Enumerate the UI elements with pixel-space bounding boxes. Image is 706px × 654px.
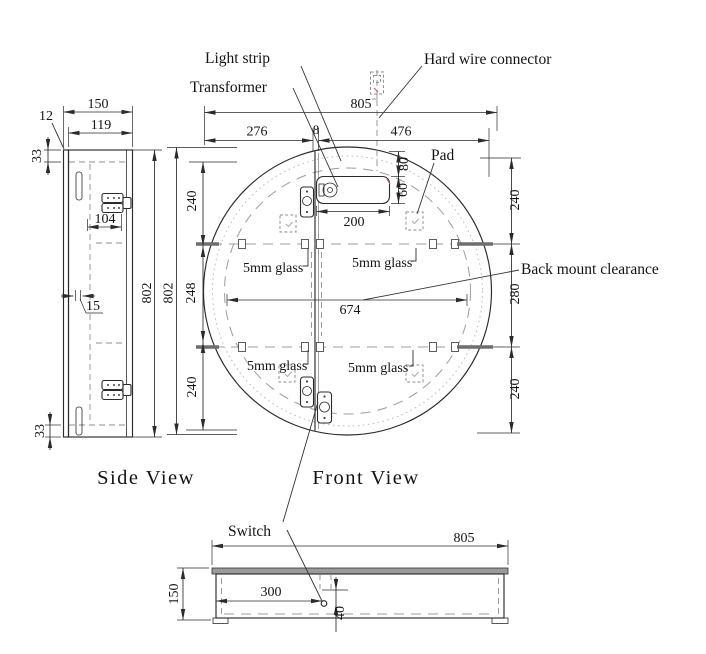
dim-805-top: 805: [351, 97, 372, 112]
bottom-dim-150: 150: [167, 568, 211, 620]
bottom-mirror-edge: [212, 568, 508, 574]
bottom-cabinet-body: [216, 574, 504, 618]
hard-wire-connector-symbol: [371, 70, 384, 171]
glass-label-bottom-left: 5mm glass: [247, 359, 307, 374]
glass-label-top-left: 5mm glass: [243, 261, 303, 276]
front-view: 805 276 8 476 80 60 200: [184, 50, 659, 489]
shelf-clips: [239, 240, 459, 352]
dim-12: 12: [39, 109, 53, 124]
dim-150-side: 150: [88, 97, 109, 112]
dim-40: 40: [333, 606, 348, 620]
dim-276: 276: [247, 125, 268, 140]
dim-60: 60: [396, 183, 411, 197]
mount-pads: [279, 212, 423, 382]
label-light-strip: Light strip: [205, 50, 270, 67]
label-switch: Switch: [228, 523, 271, 540]
hinge-top: [301, 187, 314, 217]
inner-cabinet-ring: [225, 168, 471, 414]
glass-label-top-right: 5mm glass: [352, 256, 412, 271]
dim-805-bottom: 805: [454, 531, 475, 546]
label-transformer: Transformer: [190, 79, 268, 96]
glass-label-bottom-right: 5mm glass: [348, 361, 408, 376]
dim-476: 476: [391, 125, 412, 140]
shelf-lines: [212, 244, 482, 347]
side-dim-15: 15: [61, 290, 103, 314]
side-mirror-door-plate: [64, 150, 69, 437]
front-dim-674: 674: [227, 294, 467, 318]
dim-33-bottom: 33: [33, 424, 48, 438]
dim-8: 8: [313, 122, 320, 137]
switch-symbol: [321, 601, 327, 607]
hinge-bottom-right: [318, 392, 332, 423]
dim-104: 104: [95, 212, 116, 227]
label-back-mount-clearance: Back mount clearance: [521, 261, 659, 278]
bottom-foot-right: [492, 618, 508, 624]
back-mount-bars: [196, 244, 493, 347]
side-view-title: Side View: [97, 467, 195, 489]
callouts: Light strip Transformer Hard wire connec…: [190, 50, 659, 376]
technical-drawing-mirror-cabinet: 150 12 119 33 104: [0, 0, 706, 654]
dim-33-top: 33: [30, 149, 45, 163]
side-dim-119: 119: [69, 118, 133, 147]
dim-802-mirror: 802: [162, 283, 177, 304]
side-dim-12: 12: [39, 109, 64, 149]
front-right-dim-chain: 240 280 240: [477, 158, 523, 433]
bottom-dim-300: 300: [216, 585, 322, 601]
dim-80: 80: [397, 157, 412, 171]
bottom-foot-left: [213, 618, 228, 624]
side-dim-104: 104: [88, 212, 122, 231]
side-dim-802: 802: [133, 150, 162, 437]
dim-240-right-bottom: 240: [508, 379, 523, 400]
dim-802-cabinet: 802: [140, 283, 155, 304]
dim-240-left-top: 240: [185, 191, 200, 212]
dim-280-right: 280: [508, 284, 523, 305]
dim-240-left-bottom: 240: [185, 377, 200, 398]
front-view-title: Front View: [312, 467, 419, 489]
label-hard-wire-connector: Hard wire connector: [424, 51, 552, 68]
dim-150-bottom: 150: [167, 584, 182, 605]
bottom-view: 805 150 300 40 Switch: [167, 402, 508, 632]
hinge-bottom-left: [301, 377, 314, 407]
front-left-dim-chain: 240 248 240: [184, 162, 237, 430]
dim-200: 200: [344, 215, 365, 230]
transformer-box: [317, 177, 391, 204]
dim-248-left: 248: [184, 283, 199, 304]
dim-119: 119: [91, 118, 111, 133]
front-dim-80-60: 80 60: [389, 152, 412, 204]
dim-240-right-top: 240: [508, 190, 523, 211]
center-partition-hidden: [312, 252, 322, 336]
label-pad: Pad: [431, 147, 455, 164]
side-dim-33-bottom: 33: [33, 412, 61, 450]
side-light-strip-section-bottom: [76, 407, 82, 435]
dim-300: 300: [261, 585, 282, 600]
bottom-dim-40: 40: [322, 577, 348, 632]
side-dim-33-top: 33: [30, 137, 61, 175]
front-dim-200: 200: [317, 206, 390, 230]
dim-15: 15: [86, 299, 100, 314]
dim-674: 674: [340, 303, 361, 318]
side-light-strip-section-top: [76, 172, 82, 200]
